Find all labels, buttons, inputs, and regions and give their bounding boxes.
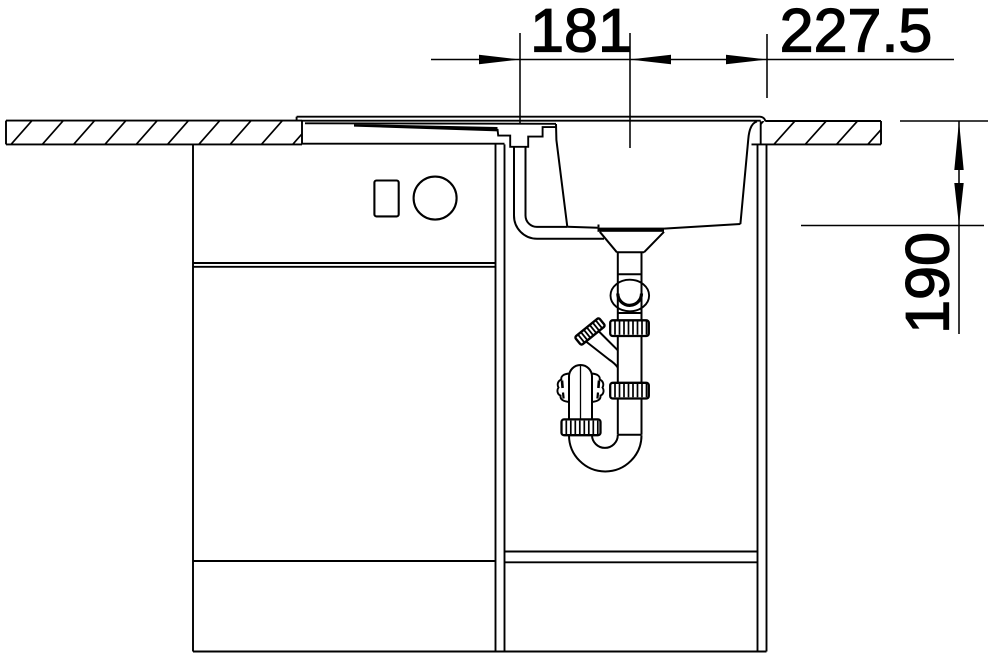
svg-text:227.5: 227.5 [780, 0, 933, 65]
svg-text:190: 190 [894, 232, 962, 334]
svg-text:181: 181 [530, 0, 632, 65]
